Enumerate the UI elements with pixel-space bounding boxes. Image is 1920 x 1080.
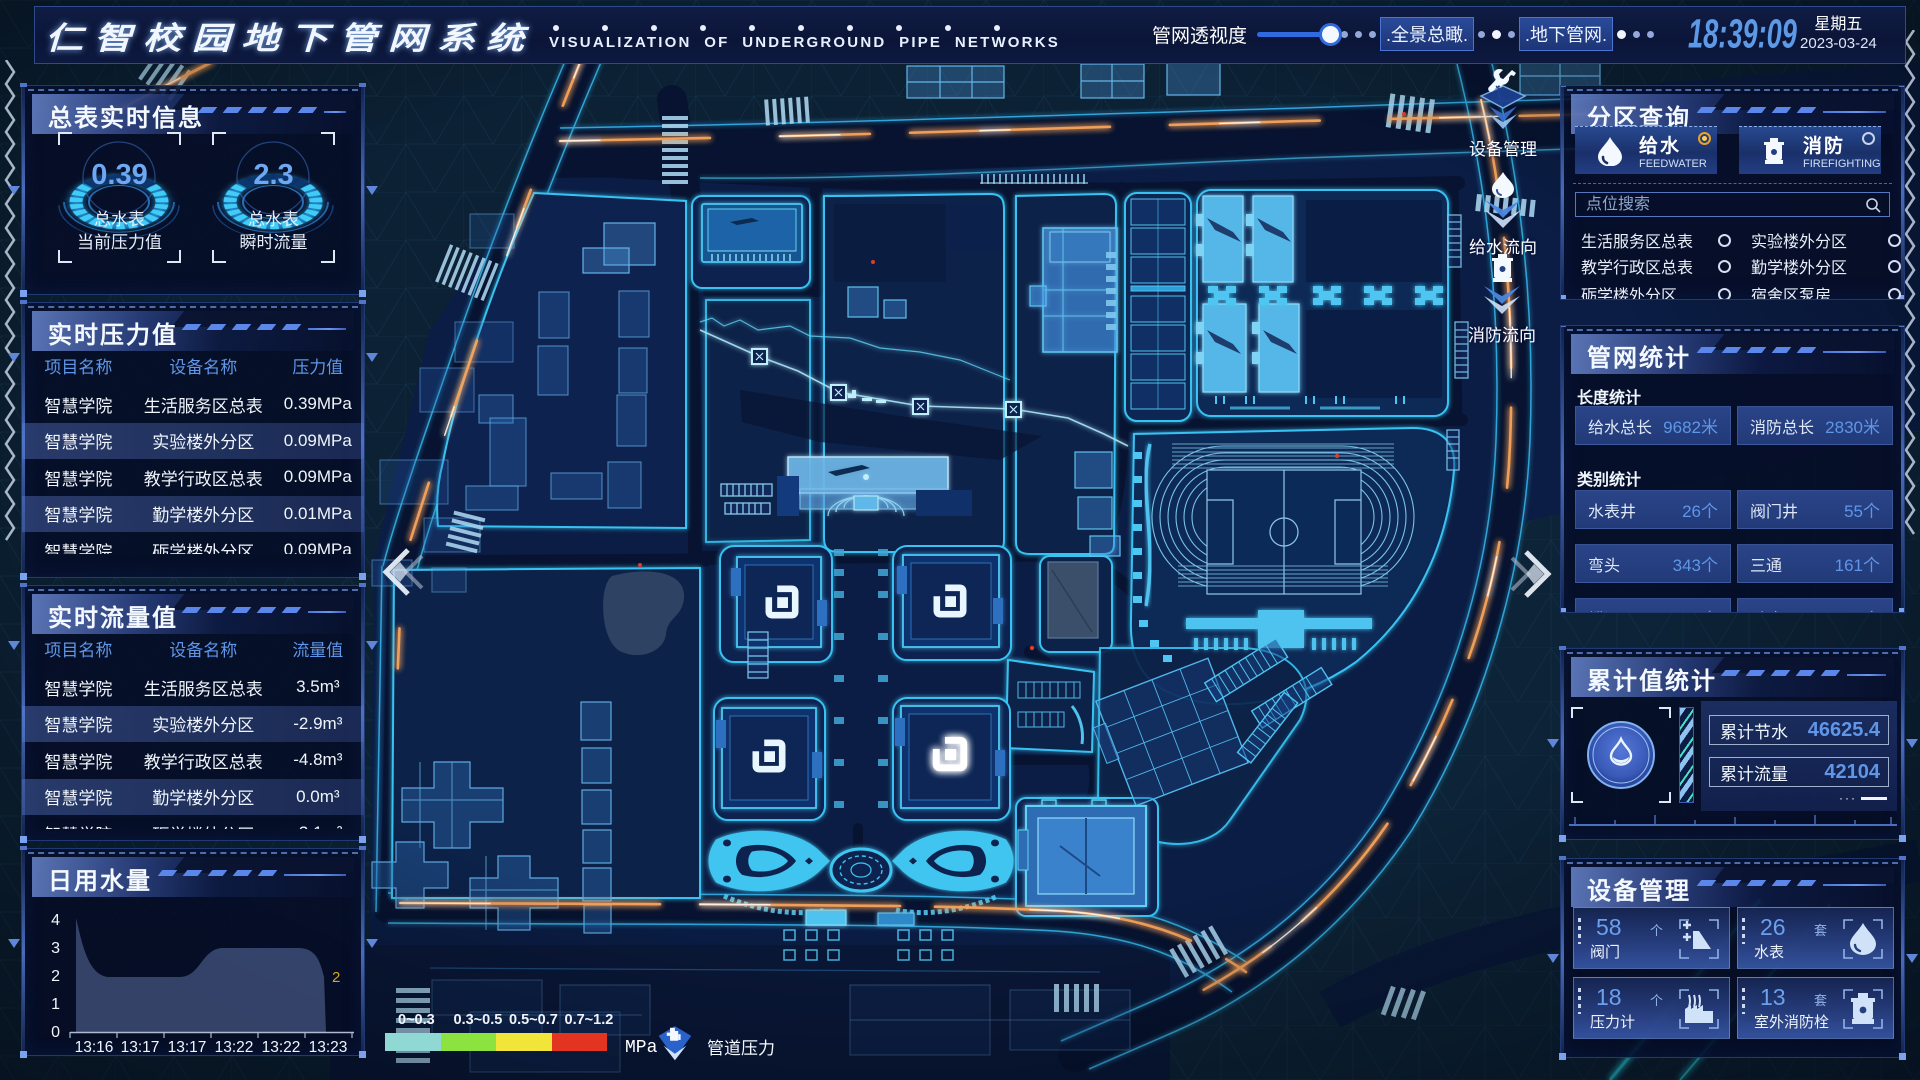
svg-text:13:23: 13:23 [309, 1039, 348, 1053]
svg-text:13:17: 13:17 [168, 1039, 207, 1053]
svg-text:0: 0 [51, 1024, 60, 1041]
svg-text:13:17: 13:17 [121, 1039, 160, 1053]
svg-text:1: 1 [51, 996, 60, 1013]
svg-text:3: 3 [51, 940, 60, 957]
svg-text:13:16: 13:16 [75, 1039, 114, 1053]
svg-text:13:22: 13:22 [262, 1039, 301, 1053]
svg-text:4: 4 [51, 912, 60, 929]
svg-text:2: 2 [332, 969, 340, 986]
svg-text:2: 2 [51, 968, 60, 985]
svg-text:13:22: 13:22 [215, 1039, 254, 1053]
